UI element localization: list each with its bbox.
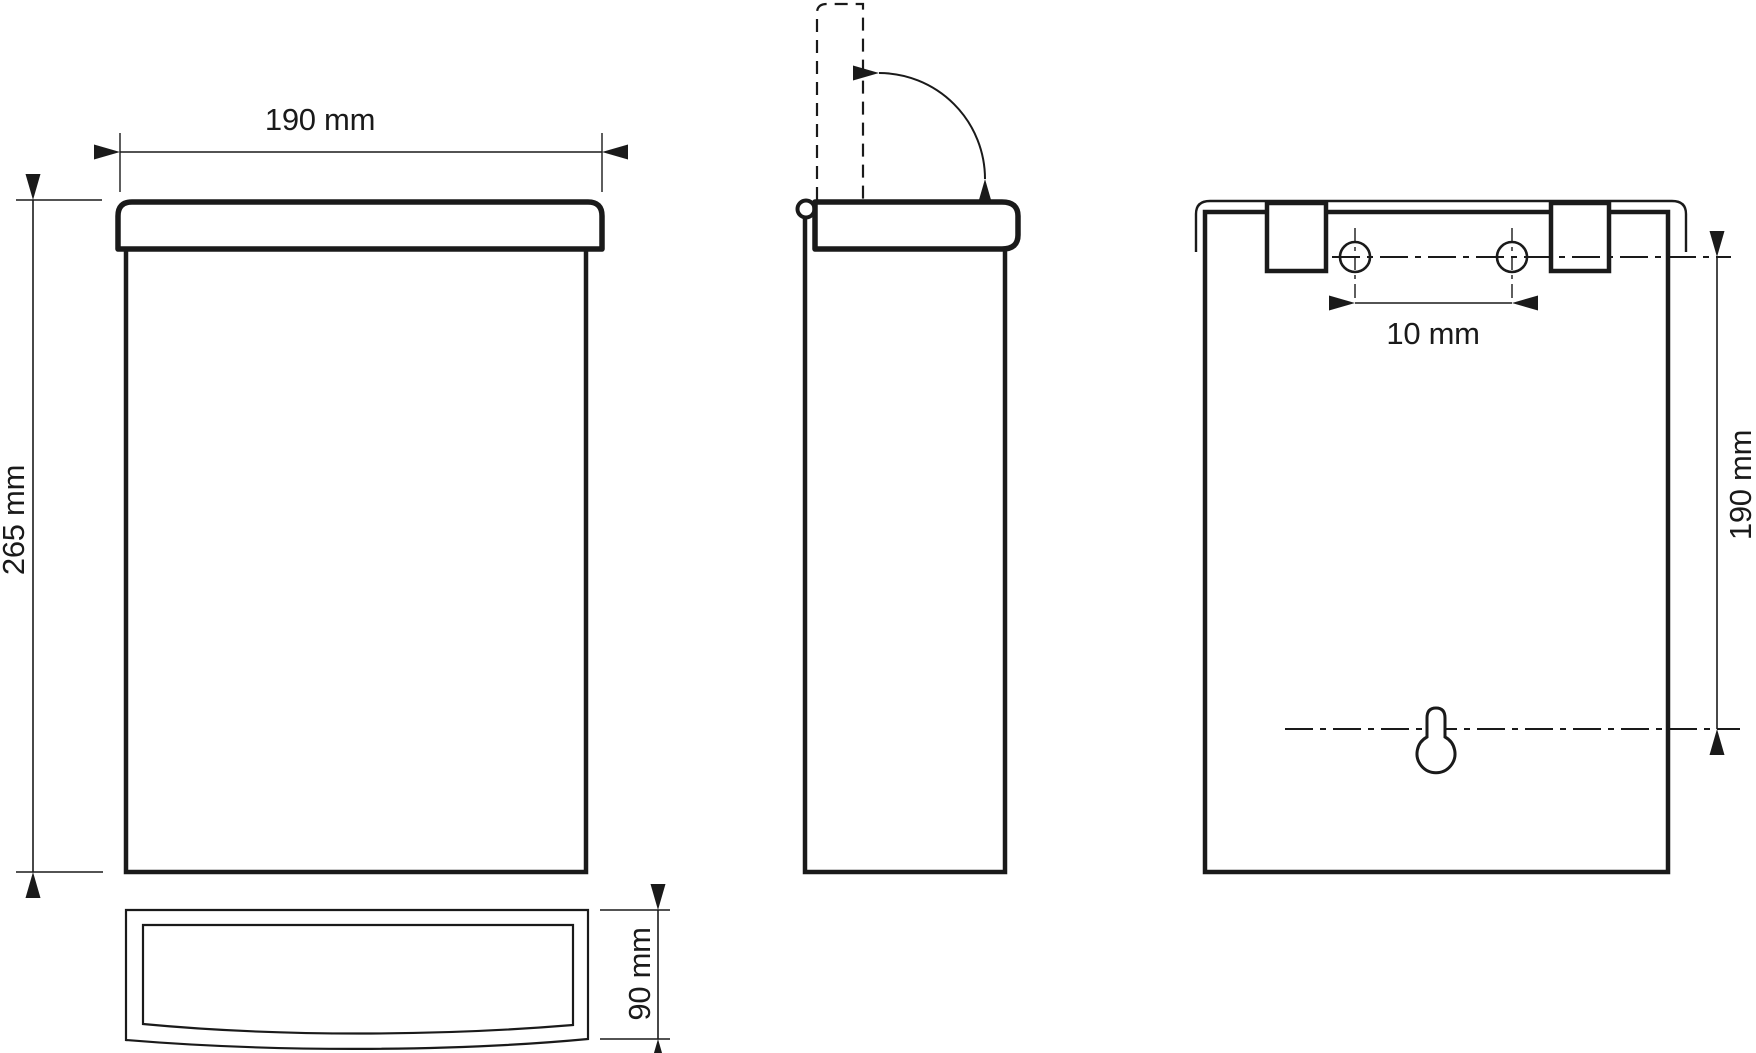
hinge-tab-left [1267,203,1326,271]
dim-hole-spacing-label: 10 mm [1386,316,1479,351]
dimension-depth: 90 mm [600,910,670,1039]
back-view [1196,201,1740,872]
dim-height-label: 265 mm [0,465,31,575]
dim-depth-label: 90 mm [622,927,657,1020]
side-lid [815,202,1018,249]
hinge-pin [798,201,815,218]
mailbox-dimension-drawing: 190 mm 265 mm 10 mm 190 mm [0,0,1756,1053]
dim-mount-height-label: 190 mm [1723,430,1756,540]
side-view [798,4,1019,872]
hinge-tab-right [1551,203,1609,271]
dim-width-label: 190 mm [265,102,375,137]
front-body [126,249,586,872]
technical-drawing-page: 190 mm 265 mm 10 mm 190 mm [0,0,1756,1053]
front-view [118,202,602,872]
lid-rotation-arc-arrow [879,73,985,179]
front-lid [118,202,602,249]
extension-lines [120,133,602,192]
bottom-view [126,910,588,1049]
dimension-width: 190 mm [120,102,602,192]
side-body [805,214,1005,872]
dimension-height: 265 mm [0,200,103,872]
dimension-mount-height: 190 mm [1717,257,1756,729]
open-lid-dashed-outline [817,4,863,200]
